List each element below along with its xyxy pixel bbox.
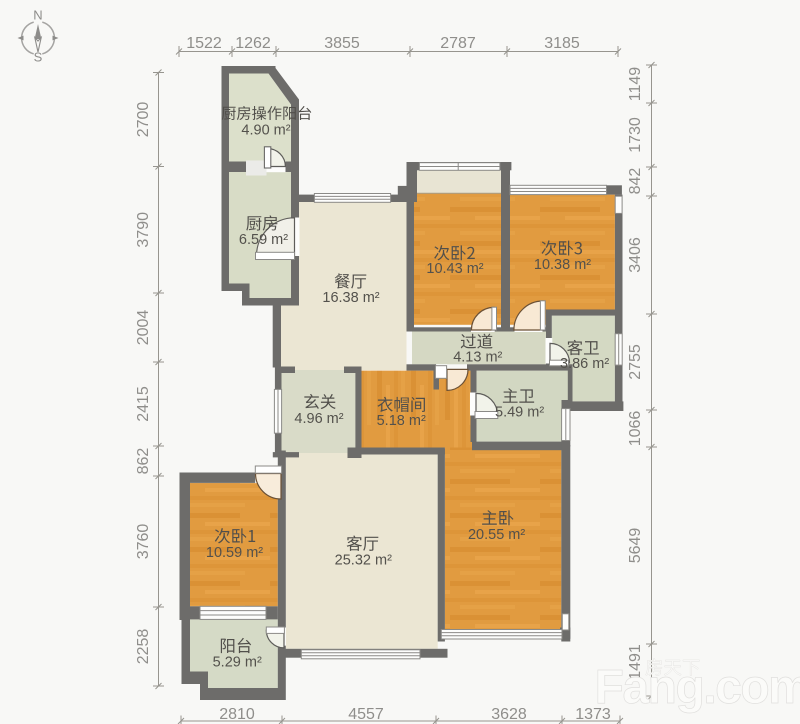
svg-text:3628: 3628 xyxy=(491,706,527,723)
svg-text:1066: 1066 xyxy=(627,411,644,447)
svg-text:10.59 m²: 10.59 m² xyxy=(206,545,263,561)
svg-text:2700: 2700 xyxy=(135,102,152,138)
svg-text:842: 842 xyxy=(627,168,644,195)
svg-text:16.38 m²: 16.38 m² xyxy=(322,290,379,306)
svg-text:10.43 m²: 10.43 m² xyxy=(426,261,483,277)
svg-text:1522: 1522 xyxy=(186,35,222,52)
svg-text:N: N xyxy=(33,8,42,23)
svg-text:2810: 2810 xyxy=(219,706,255,723)
svg-text:3406: 3406 xyxy=(627,237,644,273)
svg-text:3855: 3855 xyxy=(324,35,360,52)
svg-text:4557: 4557 xyxy=(348,706,384,723)
svg-text:10.38 m²: 10.38 m² xyxy=(534,257,591,273)
svg-text:2004: 2004 xyxy=(135,310,152,346)
svg-text:6.59 m²: 6.59 m² xyxy=(239,232,288,248)
svg-text:4.96 m²: 4.96 m² xyxy=(294,411,343,427)
svg-text:1262: 1262 xyxy=(235,35,271,52)
svg-text:862: 862 xyxy=(135,448,152,475)
svg-text:3760: 3760 xyxy=(135,524,152,560)
svg-text:1730: 1730 xyxy=(627,117,644,153)
svg-text:5.18 m²: 5.18 m² xyxy=(377,413,426,429)
svg-text:3185: 3185 xyxy=(544,35,580,52)
svg-text:5649: 5649 xyxy=(627,528,644,564)
svg-text:S: S xyxy=(34,50,43,65)
svg-text:2755: 2755 xyxy=(627,344,644,380)
svg-text:20.55 m²: 20.55 m² xyxy=(468,527,525,543)
svg-text:2787: 2787 xyxy=(440,35,476,52)
svg-text:4.90 m²: 4.90 m² xyxy=(241,123,290,139)
svg-text:Fang.com: Fang.com xyxy=(595,661,800,714)
svg-text:2258: 2258 xyxy=(135,629,152,665)
svg-text:5.49 m²: 5.49 m² xyxy=(495,405,544,421)
svg-text:3790: 3790 xyxy=(135,212,152,248)
svg-text:2415: 2415 xyxy=(135,386,152,422)
svg-text:4.13 m²: 4.13 m² xyxy=(453,350,502,366)
svg-text:3.86 m²: 3.86 m² xyxy=(560,356,609,372)
svg-text:25.32 m²: 25.32 m² xyxy=(335,553,392,569)
svg-text:5.29 m²: 5.29 m² xyxy=(213,655,262,671)
svg-text:1149: 1149 xyxy=(627,67,644,102)
